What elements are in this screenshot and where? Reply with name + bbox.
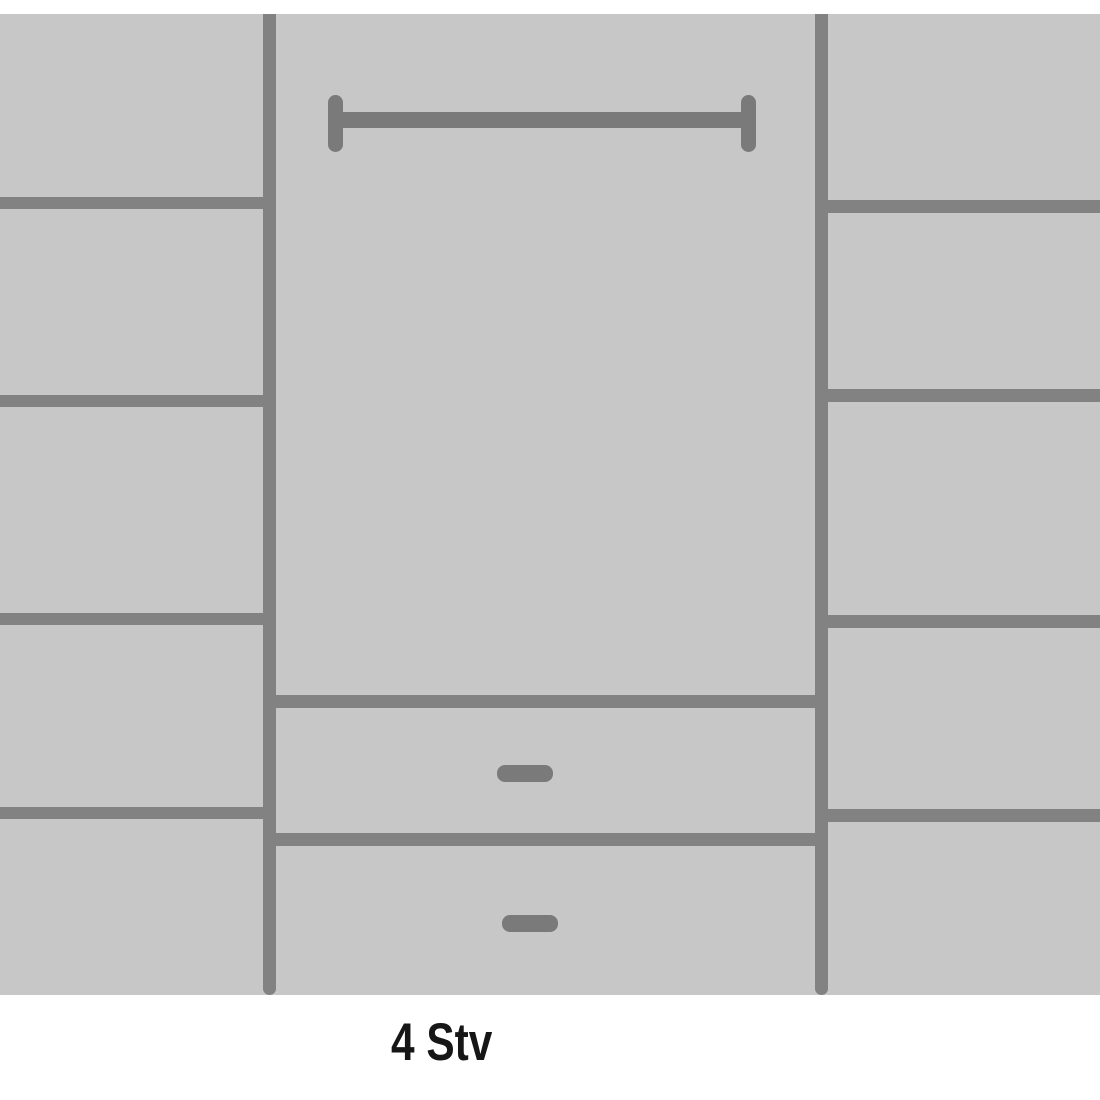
vertical-divider-right bbox=[815, 14, 828, 995]
wardrobe-panel bbox=[0, 14, 1100, 995]
right-shelf-4 bbox=[815, 809, 1100, 822]
hanging-rail-endcap-left bbox=[328, 95, 343, 152]
drawer-1-handle bbox=[497, 765, 553, 782]
caption: 4 Stv bbox=[391, 1016, 492, 1069]
left-shelf-3 bbox=[0, 613, 276, 625]
vertical-divider-left bbox=[263, 14, 276, 995]
center-drawer-divider-lower bbox=[276, 833, 815, 846]
right-shelf-3 bbox=[815, 615, 1100, 628]
right-shelf-2 bbox=[815, 389, 1100, 402]
left-shelf-4 bbox=[0, 807, 276, 819]
center-drawer-divider-upper bbox=[276, 695, 815, 708]
hanging-rail-endcap-right bbox=[741, 95, 756, 152]
drawer-2-handle bbox=[502, 915, 558, 932]
wardrobe-schematic-image: 4 Stv bbox=[0, 0, 1100, 1100]
left-shelf-2 bbox=[0, 395, 276, 407]
hanging-rail-bar bbox=[336, 112, 748, 128]
left-shelf-1 bbox=[0, 197, 276, 209]
right-shelf-1 bbox=[815, 200, 1100, 213]
